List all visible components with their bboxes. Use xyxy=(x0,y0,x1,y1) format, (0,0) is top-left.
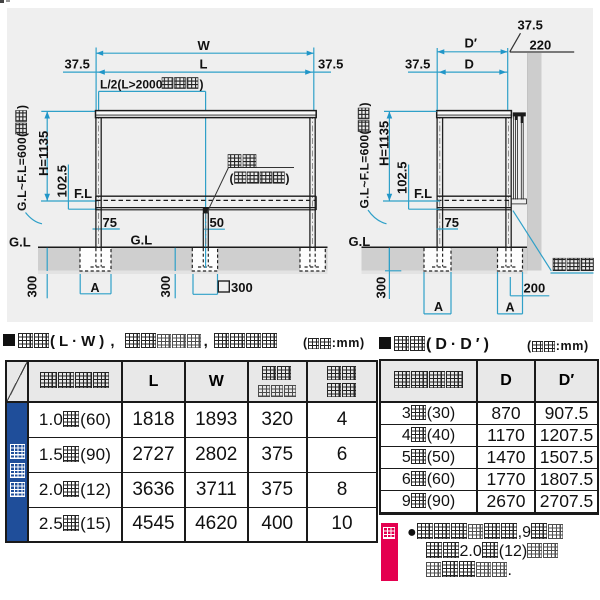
svg-text:D: D xyxy=(465,57,474,72)
svg-text:G.L~F.L=600(: G.L~F.L=600( xyxy=(15,133,29,211)
svg-text:102.5: 102.5 xyxy=(394,161,409,194)
svg-text:H=1135: H=1135 xyxy=(377,121,392,166)
svg-text:37.5: 37.5 xyxy=(65,57,90,72)
svg-text:300: 300 xyxy=(158,276,173,298)
svg-text:H=1135: H=1135 xyxy=(36,131,51,176)
svg-text:G.L: G.L xyxy=(131,233,153,248)
svg-text:(: ( xyxy=(230,172,234,186)
svg-text:300: 300 xyxy=(231,280,253,295)
svg-text:37.5: 37.5 xyxy=(318,57,343,72)
svg-text:220: 220 xyxy=(530,37,552,52)
svg-text:A: A xyxy=(91,281,100,295)
svg-text:50: 50 xyxy=(210,215,224,230)
svg-text:L: L xyxy=(200,57,208,72)
svg-text:75: 75 xyxy=(103,215,117,230)
svg-text:37.5: 37.5 xyxy=(405,57,430,72)
svg-text:75: 75 xyxy=(445,215,459,230)
svg-text:): ) xyxy=(357,103,371,107)
svg-text:L/2(L>2000: L/2(L>2000 xyxy=(100,77,163,91)
svg-text:A: A xyxy=(506,301,515,315)
svg-text:300: 300 xyxy=(374,277,389,299)
svg-text:W: W xyxy=(198,38,211,53)
svg-text:300: 300 xyxy=(25,276,40,298)
svg-text:G.L: G.L xyxy=(349,234,371,249)
svg-text:): ) xyxy=(15,105,29,109)
svg-text:200: 200 xyxy=(524,280,546,295)
svg-text:37.5: 37.5 xyxy=(518,18,543,33)
svg-text:F.L: F.L xyxy=(74,186,92,201)
svg-text:102.5: 102.5 xyxy=(55,165,70,198)
svg-text:A: A xyxy=(434,300,443,314)
svg-text:): ) xyxy=(200,77,204,91)
svg-text:): ) xyxy=(286,172,290,186)
svg-text:G.L~F.L=600(: G.L~F.L=600( xyxy=(357,130,371,208)
svg-text:F.L: F.L xyxy=(414,186,432,201)
svg-text:G.L: G.L xyxy=(9,235,31,250)
svg-text:D′: D′ xyxy=(465,36,478,51)
